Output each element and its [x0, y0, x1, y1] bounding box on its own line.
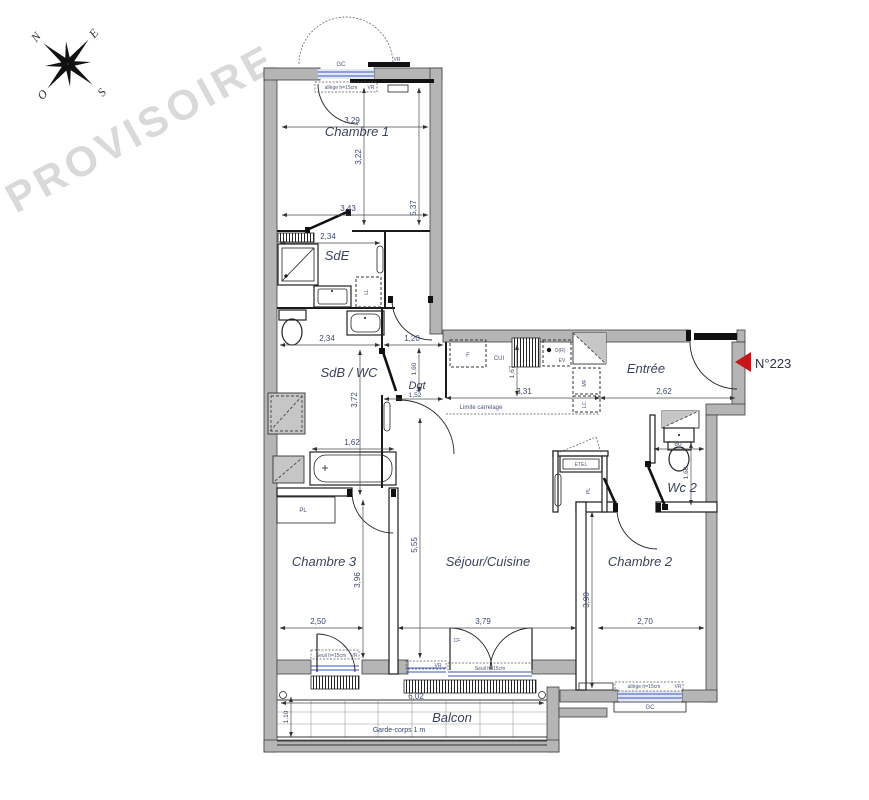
- compass-o: O: [34, 87, 51, 103]
- dim-entree-width: 2,62: [656, 387, 672, 396]
- label-seuil-sejour: Seuil h=15cm: [475, 666, 505, 672]
- exterior-walls: [264, 68, 745, 752]
- label-gc-window-c2: GC: [646, 705, 656, 711]
- window-sill-hatch: [404, 680, 536, 693]
- label-vr-shutter-c1: VR: [394, 57, 401, 63]
- label-sink: EV: [559, 358, 566, 364]
- dim-sdb-height: 3,72: [350, 392, 359, 408]
- towel-radiator: [278, 233, 314, 242]
- label-cui: CUI: [494, 356, 505, 362]
- room-labels: Chambre 1 SdE SdB / WC Dgt Entrée Wc 2 C…: [292, 124, 698, 725]
- label-washer: LL: [364, 289, 370, 295]
- radiator-sde: [377, 246, 383, 273]
- dim-sejour-width: 3,79: [475, 617, 491, 626]
- label-allege-c1: allège h=15cm: [325, 85, 358, 91]
- dim-c1-height: 3,22: [354, 149, 363, 165]
- room-label-sejour-cuisine: Séjour/Cuisine: [446, 554, 531, 569]
- label-vr-c1: VR: [368, 85, 375, 91]
- toilet-sde: [279, 310, 306, 345]
- label-seuil-c3: Seuil h=15cm: [316, 653, 346, 659]
- door-arc-balcony-left: [450, 628, 492, 670]
- window-sill-hatch: [311, 676, 359, 689]
- dim-sejour-height: 5,55: [410, 537, 419, 553]
- label-allege-c2: allège h=15cm: [628, 684, 661, 690]
- door-leaf-wc2: [648, 466, 665, 506]
- washbasin-sdb: [347, 311, 384, 335]
- room-label-sdb-wc: SdB / WC: [320, 365, 378, 380]
- label-pl-sdb: PL: [299, 508, 307, 514]
- duct-kitchen: [573, 333, 606, 364]
- label-limite-carrelage: Limite carrelage: [460, 405, 503, 411]
- room-label-dgt: Dgt: [408, 380, 426, 392]
- label-vr-c3: VR: [351, 653, 358, 659]
- room-label-sde: SdE: [325, 248, 350, 263]
- dim-c2-width: 2,70: [637, 617, 653, 626]
- door-arc-chambre2: [617, 509, 657, 549]
- room-label-chambre1: Chambre 1: [325, 124, 389, 139]
- dim-bath-width: 1,62: [344, 438, 360, 447]
- dim-wc2-height: 1,68: [683, 466, 690, 479]
- dim-kitchen-height: 1,67: [509, 365, 516, 378]
- dim-c3-width: 2,50: [310, 617, 326, 626]
- dim-kitchen-width: 3,31: [516, 387, 532, 396]
- label-garde-corps: Garde-corps 1 m: [373, 727, 426, 734]
- compass-e: E: [85, 26, 102, 42]
- dim-dgt-height: 1,60: [411, 362, 418, 375]
- dim-c2-height: 3,90: [582, 592, 591, 608]
- label-etel: ETEL: [575, 462, 588, 468]
- room-label-balcon: Balcon: [432, 710, 472, 725]
- door-leaf-chambre1: [309, 212, 347, 229]
- dim-balcon-width: 6,02: [408, 692, 424, 701]
- balcony-post: [280, 692, 287, 699]
- duct-sdb-1: [268, 393, 305, 434]
- bathtub: [310, 452, 396, 485]
- label-oven: O(R): [555, 348, 566, 354]
- label-fridge: F: [466, 353, 470, 359]
- dim-dgt-top: 1,20: [404, 334, 420, 343]
- duct-sdb-2: [273, 456, 304, 483]
- shower: [278, 244, 318, 285]
- shutter-box: [368, 62, 410, 67]
- unit-number: N°223: [755, 356, 791, 371]
- radiator-dgt: [384, 402, 390, 431]
- washbasin-sde: [314, 286, 351, 307]
- door-leaf-entrance: [694, 333, 737, 340]
- dim-sdb-width: 2,34: [319, 334, 335, 343]
- compass-rose-icon: N E S O: [2, 0, 136, 131]
- label-lc: LC: [582, 401, 588, 408]
- door-leaf-sdb: [383, 352, 396, 391]
- dim-wc2-width: 80: [674, 441, 682, 448]
- room-label-chambre3: Chambre 3: [292, 554, 357, 569]
- door-arc-balcony-right: [490, 628, 532, 670]
- label-pl-nook: PL: [586, 488, 592, 494]
- compass-s: S: [94, 85, 109, 99]
- washbasin-wc2: [664, 428, 694, 442]
- compass-n: N: [27, 29, 44, 46]
- dim-sde-width: 2,34: [320, 232, 336, 241]
- label-gc-window-c1: GC: [337, 62, 347, 68]
- label-vr-c2: VR: [675, 684, 682, 690]
- dim-balcon-depth: 1,10: [283, 710, 290, 723]
- room-label-wc2: Wc 2: [667, 480, 697, 495]
- dim-dgt-width: 1,52: [409, 392, 422, 399]
- room-label-chambre2: Chambre 2: [608, 554, 673, 569]
- door-arc-dgt-sejour: [400, 400, 454, 454]
- dim-c3-height: 3,96: [353, 572, 362, 588]
- duct-wc2: [662, 411, 699, 428]
- label-cf: CF: [454, 638, 461, 644]
- label-mf: MF: [582, 379, 588, 386]
- dimension-texts: 3,29 3,22 3,43 5,37 2,34 2,34 1,20 3,72 …: [283, 116, 690, 723]
- window-swing-dashed: [299, 17, 393, 64]
- dim-c1-right: 5,37: [409, 200, 418, 216]
- floor-plan: PROVISOIRE N E S O: [0, 0, 869, 800]
- room-label-entree: Entrée: [627, 361, 665, 376]
- watermark-text: PROVISOIRE: [0, 35, 284, 222]
- label-vr-sejour-window: VR: [435, 663, 442, 669]
- dim-c1-bottom: 3,43: [340, 204, 356, 213]
- door-arc-entrance: [690, 342, 737, 389]
- cooktop: [512, 338, 540, 367]
- balcony-post: [539, 692, 546, 699]
- door-arc-chambre3: [352, 492, 393, 533]
